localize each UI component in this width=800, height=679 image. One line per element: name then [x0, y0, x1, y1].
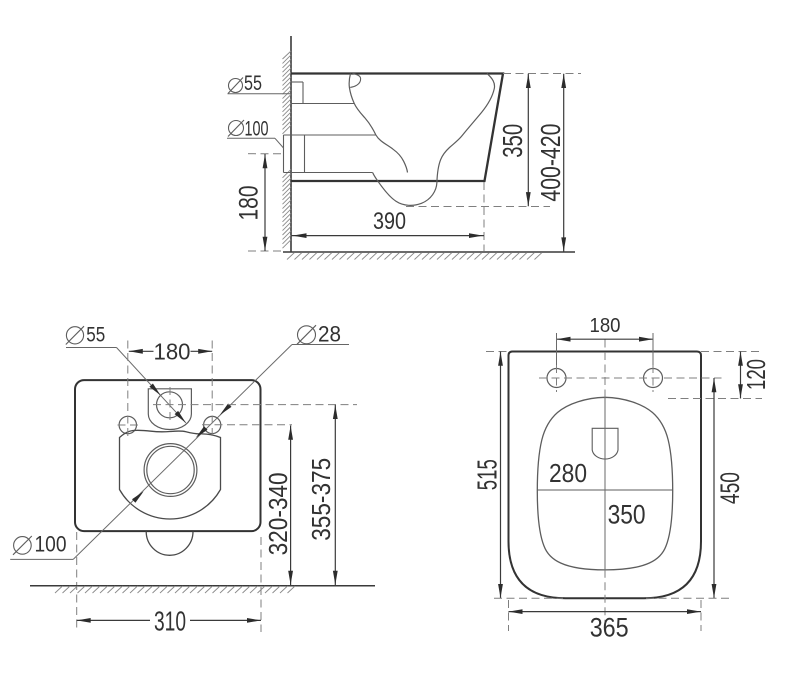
svg-text:55: 55 [86, 324, 105, 347]
svg-text:320-340: 320-340 [263, 472, 293, 555]
svg-text:180: 180 [154, 339, 191, 365]
svg-text:310: 310 [154, 605, 186, 636]
svg-text:28: 28 [318, 322, 341, 347]
svg-text:280: 280 [549, 458, 587, 488]
svg-text:180: 180 [234, 186, 264, 221]
svg-text:355-375: 355-375 [306, 458, 336, 541]
svg-text:180: 180 [590, 315, 621, 337]
svg-text:515: 515 [472, 459, 503, 490]
svg-text:390: 390 [373, 208, 406, 235]
svg-text:100: 100 [35, 531, 67, 556]
svg-text:120: 120 [741, 359, 771, 390]
svg-text:350: 350 [497, 124, 528, 158]
svg-text:450: 450 [715, 472, 745, 504]
svg-text:350: 350 [608, 499, 646, 529]
svg-text:55: 55 [244, 72, 262, 95]
svg-text:400-420: 400-420 [535, 124, 566, 202]
svg-text:365: 365 [590, 613, 629, 643]
svg-text:100: 100 [245, 117, 269, 140]
